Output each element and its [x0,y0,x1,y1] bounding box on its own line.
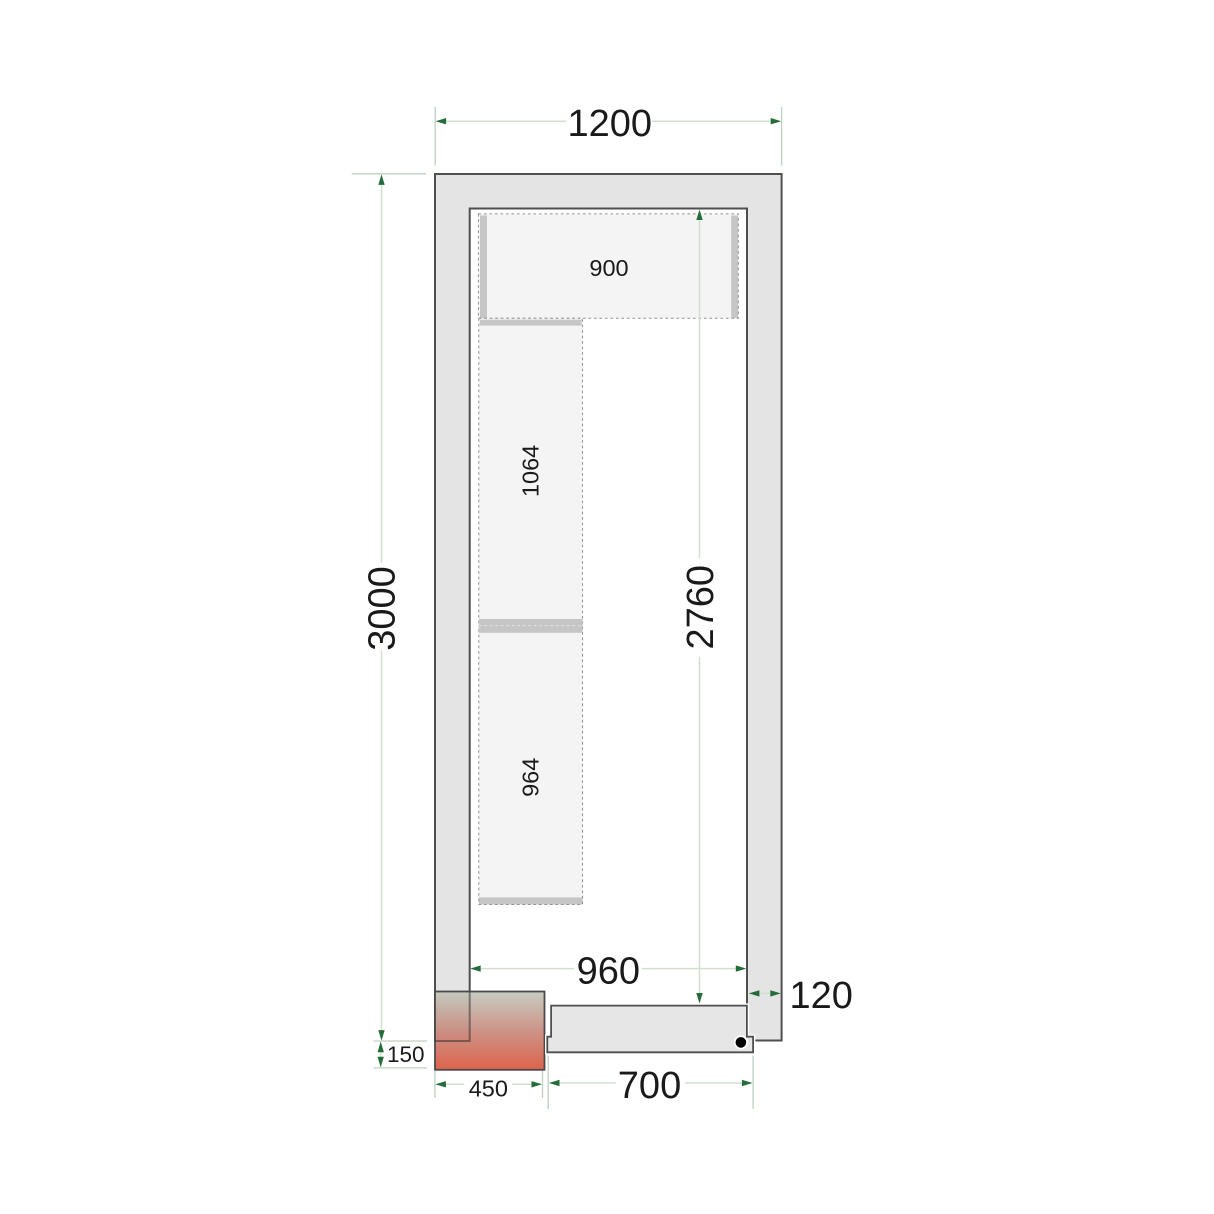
svg-text:150: 150 [387,1042,425,1067]
svg-text:2760: 2760 [680,565,722,650]
svg-text:450: 450 [469,1076,508,1102]
svg-text:1200: 1200 [568,103,653,145]
svg-text:700: 700 [618,1065,681,1107]
svg-text:1064: 1064 [518,445,544,497]
svg-text:3000: 3000 [362,566,404,651]
svg-text:960: 960 [577,950,640,992]
svg-text:900: 900 [589,255,628,281]
svg-text:964: 964 [518,758,544,797]
svg-text:120: 120 [790,975,853,1017]
